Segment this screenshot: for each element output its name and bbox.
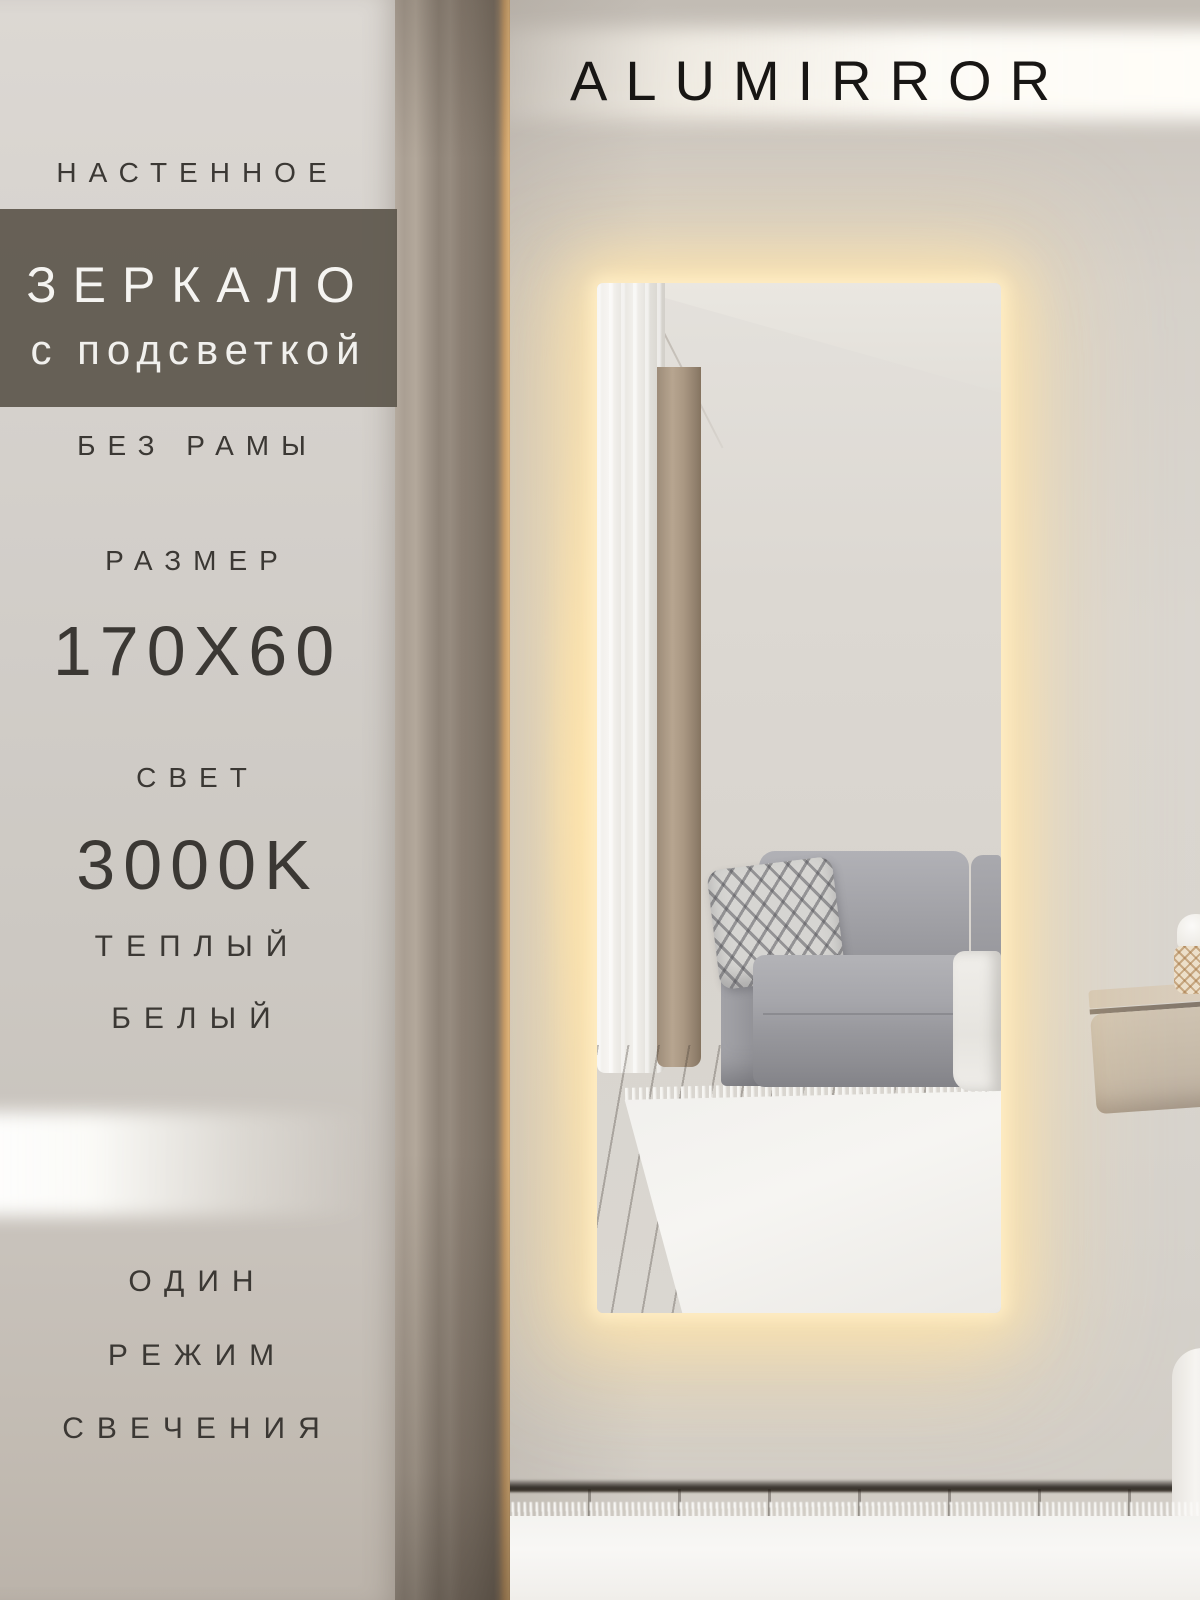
frame-label: БЕЗ РАМЫ bbox=[0, 431, 395, 462]
product-subtitle: с подсветкой bbox=[0, 326, 397, 374]
light-tone-line1: ТЕПЛЫЙ bbox=[0, 930, 395, 963]
size-label: РАЗМЕР bbox=[0, 546, 395, 577]
vase-lid bbox=[1177, 914, 1200, 948]
mode-line3: СВЕЧЕНИЯ bbox=[0, 1412, 395, 1445]
mount-type-label: НАСТЕННОЕ bbox=[0, 158, 395, 189]
reflected-rug bbox=[617, 1091, 1001, 1313]
reflected-white-blanket bbox=[953, 951, 1001, 1091]
reflected-beige-drape bbox=[657, 367, 701, 1067]
panel-light-streak bbox=[0, 1112, 370, 1216]
light-tone-line2: БЕЛЫЙ bbox=[0, 1002, 395, 1035]
mode-line2: РЕЖИМ bbox=[0, 1339, 395, 1372]
white-rug bbox=[466, 1516, 1200, 1600]
size-value: 170X60 bbox=[0, 613, 395, 690]
brand-logo: ALUMIRROR bbox=[570, 48, 1030, 113]
curtain bbox=[395, 0, 510, 1600]
reflected-sheer-curtain bbox=[597, 283, 665, 1073]
vase-patterned-body bbox=[1174, 946, 1200, 994]
backlit-mirror bbox=[597, 283, 1001, 1313]
mode-line1: ОДИН bbox=[0, 1265, 395, 1298]
title-band: ЗЕРКАЛО с подсветкой bbox=[0, 209, 397, 407]
product-card: НАСТЕННОЕ ЗЕРКАЛО с подсветкой БЕЗ РАМЫ … bbox=[0, 0, 1200, 1600]
floating-shelf bbox=[1088, 982, 1200, 1124]
shelf-front-face bbox=[1090, 1006, 1200, 1114]
decor-vase bbox=[1174, 914, 1200, 998]
light-label: СВЕТ bbox=[0, 763, 395, 794]
light-temperature-value: 3000K bbox=[0, 827, 395, 904]
product-title: ЗЕРКАЛО bbox=[0, 256, 397, 314]
